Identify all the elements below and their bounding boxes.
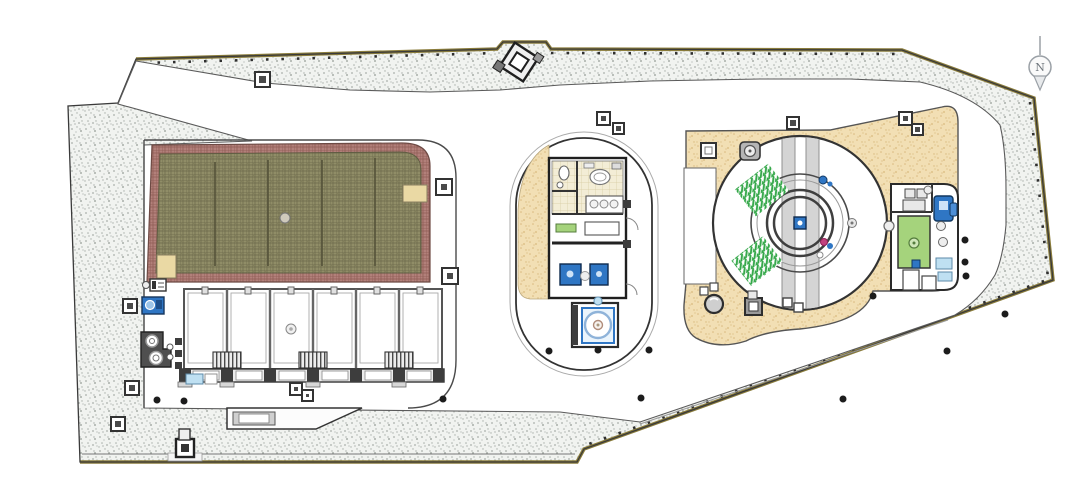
- site-plan-page: N: [0, 0, 1068, 495]
- bed-beige-pad-sw: [157, 255, 176, 278]
- east-blue-equipment: [934, 196, 957, 221]
- generator-pump: [912, 260, 920, 268]
- north-label: N: [1035, 61, 1045, 74]
- east-closet-1: [903, 270, 919, 290]
- blue-pump-impeller: [146, 301, 155, 310]
- toilet-fixture: [559, 166, 569, 180]
- basin-fixture: [590, 170, 610, 185]
- east-closet-2: [922, 276, 936, 290]
- bed-hatch-area: [156, 152, 421, 273]
- well-pump-pad: [572, 297, 618, 347]
- well-vent: [594, 297, 602, 305]
- annex-valve: [143, 282, 150, 289]
- wall-junction-boxes: [175, 338, 182, 369]
- north-arrow-tail: [1034, 76, 1046, 90]
- east-basin-1: [936, 258, 952, 269]
- console-gauge: [924, 186, 932, 194]
- wall-valve-2: [167, 354, 173, 360]
- wall-box-e2: [623, 240, 631, 248]
- east-gauge-1: [937, 222, 946, 231]
- generator-port-dot: [913, 242, 916, 245]
- east-wall-valve: [884, 221, 894, 231]
- counter-sinks: [590, 200, 618, 208]
- wall-valve-1: [167, 344, 173, 350]
- east-gauge-2: [939, 238, 948, 247]
- apron-notch: [684, 168, 716, 284]
- bed-beige-pad-ne: [403, 185, 427, 202]
- east-plant-rooms: [884, 184, 958, 290]
- shelf-box: [584, 163, 594, 168]
- blue-pump-motor: [156, 300, 162, 309]
- east-basin-2: [938, 272, 952, 281]
- floor-drain: [557, 182, 563, 188]
- bed-center-marker: [280, 213, 290, 223]
- central-building: [510, 132, 658, 376]
- annex-basin: [186, 374, 203, 384]
- well-cap-dot: [597, 324, 600, 327]
- work-table: [585, 222, 619, 235]
- north-arrow: N: [1029, 36, 1051, 90]
- control-console: [903, 189, 927, 211]
- cistern-box: [612, 163, 621, 169]
- pedestal-manhole-1: [146, 335, 158, 347]
- tank2-port: [596, 271, 602, 277]
- garage-stalls: [178, 287, 444, 387]
- tank1-port: [567, 271, 574, 278]
- electrical-box-bar: [152, 281, 156, 289]
- between-tank-valve: [581, 272, 590, 281]
- site-plan-canvas: N: [0, 0, 1068, 495]
- stall-floor-drain-dot: [289, 327, 293, 331]
- wall-box-e1: [623, 200, 631, 208]
- pedestal-manhole-2: [150, 352, 163, 365]
- green-workbench: [556, 224, 576, 232]
- annex-step: [205, 374, 217, 384]
